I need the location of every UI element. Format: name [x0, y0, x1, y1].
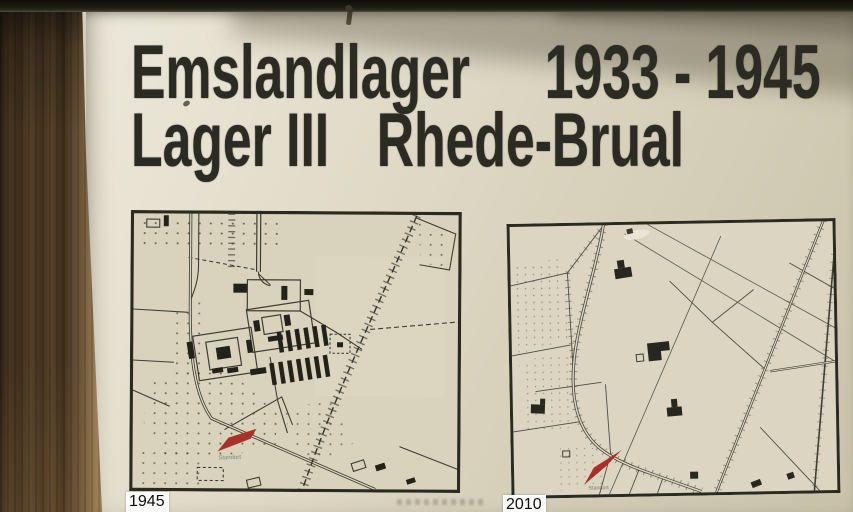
illegible-credit-text — [397, 499, 485, 505]
subtitle-place: Rhede-Brual — [377, 103, 684, 179]
photo-of-memorial-sign: Emslandlager 1933 - 1945 Lager III Rhede… — [0, 0, 853, 512]
sign-subtitle: Lager III Rhede-Brual — [131, 103, 684, 179]
year-label-2010: 2010 — [503, 495, 546, 512]
map-1945: Standort — [129, 210, 462, 493]
year-label-1945: 1945 — [126, 492, 169, 512]
standort-label-2010: Standort — [588, 485, 609, 491]
subtitle-lager: Lager III — [131, 103, 329, 179]
map-2010-drawing: Standort — [507, 218, 841, 499]
sign-frame-top — [0, 0, 853, 12]
nail-head-icon — [345, 5, 352, 11]
map-1945-drawing: Standort — [129, 210, 462, 493]
standort-label-1945: Standort — [218, 455, 241, 462]
map-2010: Standort — [507, 218, 841, 499]
